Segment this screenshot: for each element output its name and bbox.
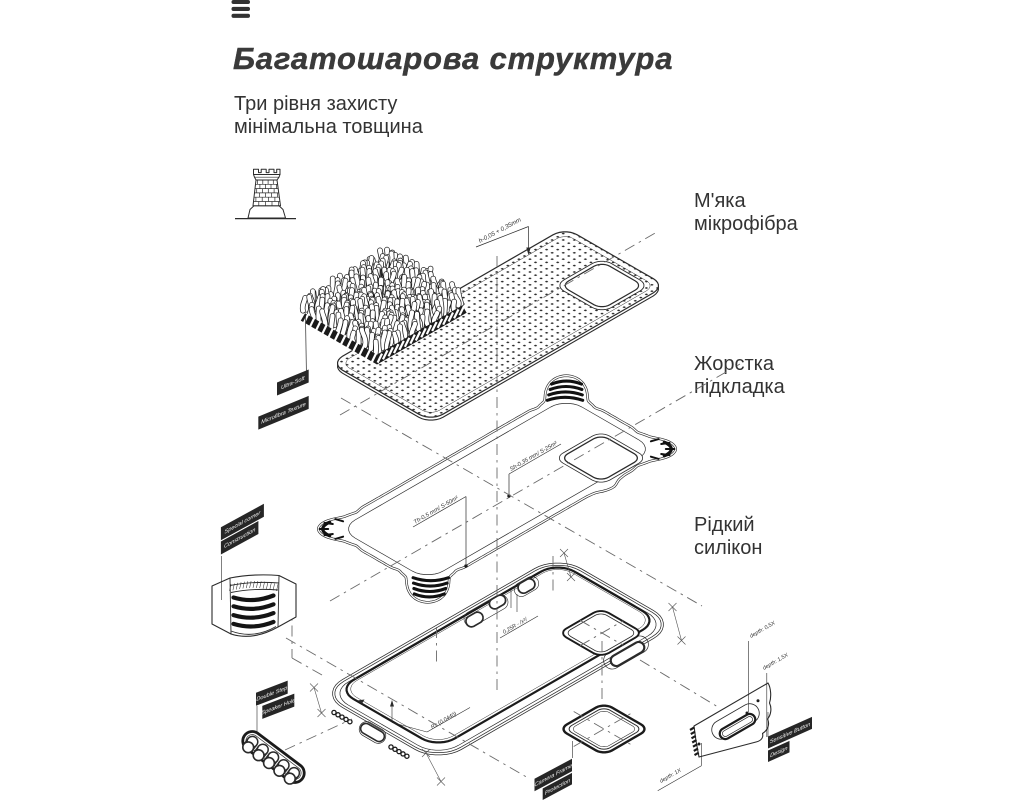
svg-text:depth: 1,5X: depth: 1,5X <box>762 652 790 671</box>
svg-text:depth: 1X: depth: 1X <box>659 768 683 785</box>
svg-text:depth: 0,5X: depth: 0,5X <box>749 620 777 639</box>
svg-text:h-0,05 + 0,35mm: h-0,05 + 0,35mm <box>478 217 523 245</box>
